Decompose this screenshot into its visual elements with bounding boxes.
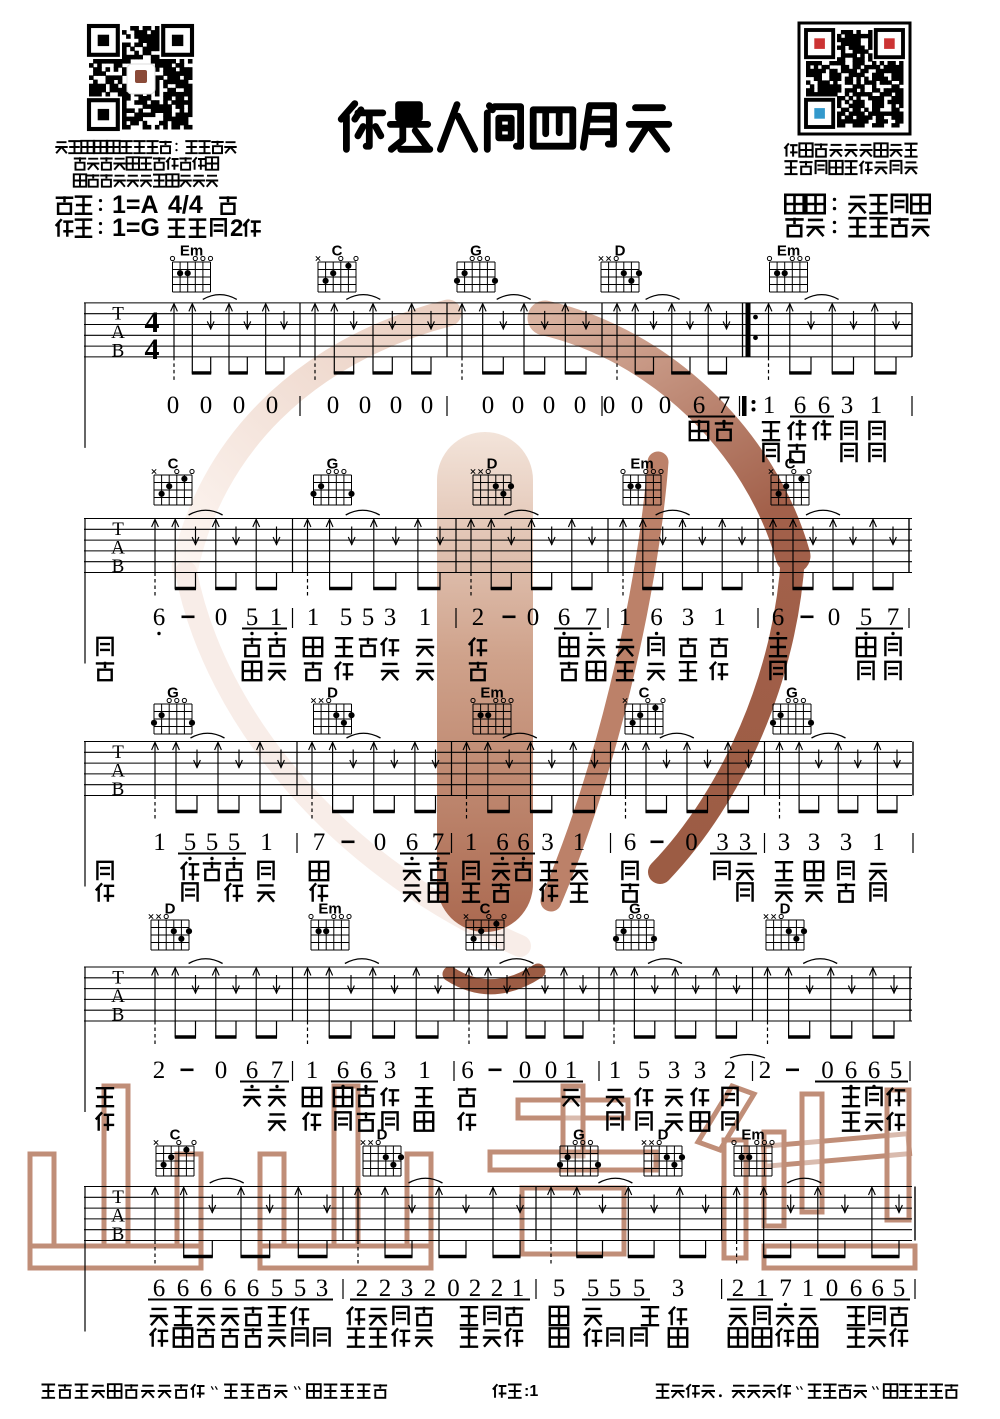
svg-text:6: 6 xyxy=(153,604,166,631)
svg-text:G: G xyxy=(629,901,641,918)
svg-text:3: 3 xyxy=(668,1057,681,1084)
svg-text:1: 1 xyxy=(713,604,726,631)
svg-text:1: 1 xyxy=(270,604,283,631)
svg-text:B: B xyxy=(112,1005,125,1026)
svg-text:1: 1 xyxy=(756,1275,769,1302)
svg-text:6: 6 xyxy=(406,829,419,856)
svg-text:0: 0 xyxy=(826,1275,839,1302)
svg-text:0: 0 xyxy=(374,829,387,856)
svg-text:1: 1 xyxy=(763,392,776,419)
svg-text:6: 6 xyxy=(818,392,831,419)
svg-text:7: 7 xyxy=(779,1275,792,1302)
svg-text:0: 0 xyxy=(685,829,698,856)
svg-text:7: 7 xyxy=(887,604,900,631)
svg-text:3: 3 xyxy=(739,829,752,856)
svg-text:0: 0 xyxy=(421,392,434,419)
svg-text:3: 3 xyxy=(808,829,821,856)
svg-text:3: 3 xyxy=(778,829,791,856)
svg-text:3: 3 xyxy=(672,1275,685,1302)
svg-text:B: B xyxy=(112,1224,125,1245)
svg-text:D: D xyxy=(377,1127,388,1144)
svg-text:0: 0 xyxy=(821,1057,834,1084)
svg-text:D: D xyxy=(658,1127,669,1144)
svg-text:1: 1 xyxy=(573,829,586,856)
svg-text:5: 5 xyxy=(633,1275,646,1302)
svg-text:6: 6 xyxy=(845,1057,858,1084)
svg-text:0: 0 xyxy=(631,392,644,419)
svg-text:C: C xyxy=(332,243,343,260)
svg-text:1: 1 xyxy=(870,392,883,419)
svg-text:1: 1 xyxy=(802,1275,815,1302)
svg-text:0: 0 xyxy=(447,1275,460,1302)
svg-text:C: C xyxy=(639,685,650,702)
svg-text:G: G xyxy=(470,243,482,260)
svg-text:1: 1 xyxy=(418,1057,431,1084)
svg-text:6: 6 xyxy=(693,392,706,419)
svg-text:4/4: 4/4 xyxy=(168,191,203,219)
svg-text:6: 6 xyxy=(794,392,807,419)
svg-text:0: 0 xyxy=(215,604,228,631)
svg-text:B: B xyxy=(112,340,125,361)
svg-text:G: G xyxy=(167,685,179,702)
svg-text:7: 7 xyxy=(718,392,731,419)
svg-text:6: 6 xyxy=(200,1275,213,1302)
svg-text:0: 0 xyxy=(574,392,587,419)
svg-text:1: 1 xyxy=(306,1057,319,1084)
svg-text:6: 6 xyxy=(868,1057,881,1084)
svg-text:6: 6 xyxy=(650,604,663,631)
svg-text:C: C xyxy=(480,901,491,918)
svg-text:6: 6 xyxy=(337,1057,350,1084)
svg-text:2: 2 xyxy=(469,1275,482,1302)
svg-text:0: 0 xyxy=(200,392,213,419)
svg-text:0: 0 xyxy=(545,1057,558,1084)
svg-text:2: 2 xyxy=(424,1275,437,1302)
svg-text:5: 5 xyxy=(362,604,375,631)
svg-text:5: 5 xyxy=(184,829,197,856)
svg-text:D: D xyxy=(780,901,791,918)
svg-text:5: 5 xyxy=(638,1057,651,1084)
svg-text:7: 7 xyxy=(271,1057,284,1084)
svg-text:6: 6 xyxy=(871,1275,884,1302)
svg-text:0: 0 xyxy=(543,392,556,419)
svg-text:6: 6 xyxy=(247,1275,260,1302)
svg-text:3: 3 xyxy=(401,1275,414,1302)
svg-text:7: 7 xyxy=(313,829,326,856)
svg-text:5: 5 xyxy=(206,829,219,856)
svg-text:6: 6 xyxy=(461,1057,474,1084)
svg-text:5: 5 xyxy=(271,1275,284,1302)
svg-text:7: 7 xyxy=(432,829,445,856)
svg-text:0: 0 xyxy=(603,392,616,419)
svg-text:2: 2 xyxy=(491,1275,504,1302)
svg-text:2: 2 xyxy=(153,1057,166,1084)
svg-text:G: G xyxy=(786,685,798,702)
svg-text:Em: Em xyxy=(180,243,203,260)
svg-text:6: 6 xyxy=(517,829,530,856)
svg-text:5: 5 xyxy=(228,829,241,856)
svg-text:Em: Em xyxy=(318,901,341,918)
svg-text:0: 0 xyxy=(167,392,180,419)
svg-text:3: 3 xyxy=(841,392,854,419)
svg-text:5: 5 xyxy=(609,1275,622,1302)
svg-text:6: 6 xyxy=(624,829,637,856)
svg-text:3: 3 xyxy=(541,829,554,856)
svg-text:0: 0 xyxy=(519,1057,532,1084)
svg-text:2: 2 xyxy=(732,1275,745,1302)
svg-text:2: 2 xyxy=(356,1275,369,1302)
svg-text:1: 1 xyxy=(419,604,432,631)
svg-text::1: :1 xyxy=(524,1383,538,1400)
svg-text:5: 5 xyxy=(294,1275,307,1302)
svg-text:0: 0 xyxy=(266,392,279,419)
svg-text:6: 6 xyxy=(772,604,785,631)
svg-text:5: 5 xyxy=(890,1057,903,1084)
svg-text:4: 4 xyxy=(145,333,160,366)
svg-text:7: 7 xyxy=(585,604,598,631)
svg-text:6: 6 xyxy=(360,1057,373,1084)
svg-text:1: 1 xyxy=(260,829,273,856)
svg-text:0: 0 xyxy=(233,392,246,419)
svg-text:0: 0 xyxy=(512,392,525,419)
svg-text:C: C xyxy=(168,456,179,473)
svg-text:3: 3 xyxy=(316,1275,329,1302)
svg-text:1: 1 xyxy=(619,604,632,631)
svg-text:6: 6 xyxy=(224,1275,237,1302)
svg-text:5: 5 xyxy=(340,604,353,631)
svg-text:6: 6 xyxy=(558,604,571,631)
svg-text:2: 2 xyxy=(230,215,243,242)
svg-text:6: 6 xyxy=(496,829,509,856)
svg-text:G: G xyxy=(327,456,339,473)
svg-text:1: 1 xyxy=(465,829,478,856)
svg-text:0: 0 xyxy=(215,1057,228,1084)
svg-text:1=G: 1=G xyxy=(112,214,160,242)
svg-text:0: 0 xyxy=(659,392,672,419)
svg-text:D: D xyxy=(615,243,626,260)
svg-text:6: 6 xyxy=(850,1275,863,1302)
svg-text:1: 1 xyxy=(565,1057,578,1084)
svg-text:5: 5 xyxy=(587,1275,600,1302)
svg-text:0: 0 xyxy=(390,392,403,419)
svg-text:B: B xyxy=(112,556,125,577)
svg-text:6: 6 xyxy=(177,1275,190,1302)
svg-text:5: 5 xyxy=(860,604,873,631)
svg-text:0: 0 xyxy=(327,392,340,419)
svg-text:3: 3 xyxy=(384,604,397,631)
svg-text:2: 2 xyxy=(379,1275,392,1302)
svg-text:Em: Em xyxy=(630,456,653,473)
svg-text:3: 3 xyxy=(384,1057,397,1084)
svg-text:1: 1 xyxy=(153,829,166,856)
svg-text:2: 2 xyxy=(759,1057,772,1084)
svg-text:3: 3 xyxy=(694,1057,707,1084)
svg-text:D: D xyxy=(487,456,498,473)
svg-text:3: 3 xyxy=(840,829,853,856)
svg-text:5: 5 xyxy=(553,1275,566,1302)
svg-text:Em: Em xyxy=(777,243,800,260)
svg-text:G: G xyxy=(573,1127,585,1144)
svg-text:B: B xyxy=(112,779,125,800)
svg-text:C: C xyxy=(785,456,796,473)
svg-text:Em: Em xyxy=(741,1127,764,1144)
svg-text:0: 0 xyxy=(359,392,372,419)
svg-text:C: C xyxy=(170,1127,181,1144)
svg-text:5: 5 xyxy=(893,1275,906,1302)
svg-text:D: D xyxy=(165,901,176,918)
svg-text:1: 1 xyxy=(872,829,885,856)
svg-text:0: 0 xyxy=(828,604,841,631)
svg-text:Em: Em xyxy=(480,685,503,702)
svg-text:6: 6 xyxy=(246,1057,259,1084)
svg-text:1: 1 xyxy=(609,1057,622,1084)
svg-text:D: D xyxy=(327,685,338,702)
svg-text:6: 6 xyxy=(153,1275,166,1302)
svg-text:0: 0 xyxy=(482,392,495,419)
svg-text:1: 1 xyxy=(512,1275,525,1302)
svg-text:3: 3 xyxy=(716,829,729,856)
svg-text:2: 2 xyxy=(724,1057,737,1084)
svg-text:5: 5 xyxy=(246,604,259,631)
svg-text:1: 1 xyxy=(307,604,320,631)
svg-text:0: 0 xyxy=(527,604,540,631)
svg-text:2: 2 xyxy=(472,604,485,631)
svg-text:3: 3 xyxy=(682,604,695,631)
